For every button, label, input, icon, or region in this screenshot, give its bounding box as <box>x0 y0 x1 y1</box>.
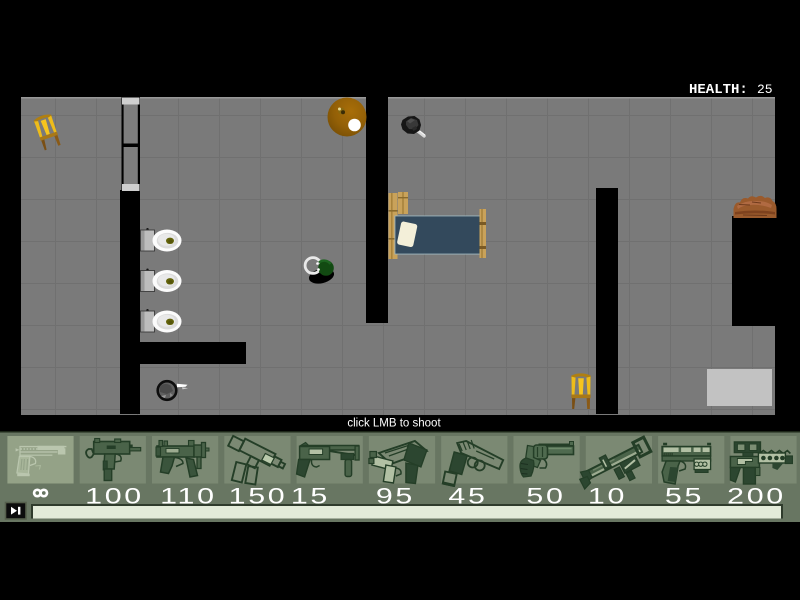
svg-text:HEALTH:: HEALTH: <box>689 82 748 98</box>
svg-text:click LMB to shoot: click LMB to shoot <box>347 418 441 430</box>
svg-text:25: 25 <box>757 82 773 97</box>
